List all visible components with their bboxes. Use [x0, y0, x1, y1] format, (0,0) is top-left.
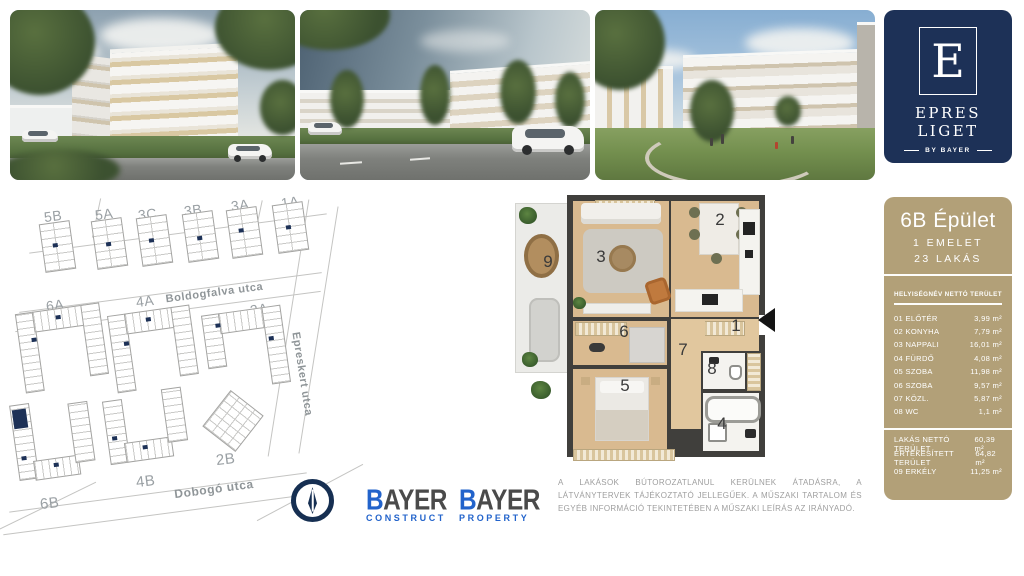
building-5B: [39, 220, 77, 273]
table-row: 01 ELŐTÉR3,99 m²: [894, 312, 1002, 325]
divider: [884, 428, 1012, 430]
main-building: [110, 47, 238, 150]
room-living: [573, 201, 669, 317]
sofa: [581, 203, 661, 224]
table-row: 05 SZOBA11,98 m²: [894, 365, 1002, 378]
room-number-4: 4: [717, 414, 726, 434]
table-row: 07 KÖZL.5,87 m²: [894, 392, 1002, 405]
car: [512, 126, 584, 152]
building-4B: [101, 387, 188, 469]
room-table: 01 ELŐTÉR3,99 m² 02 KONYHA7,79 m² 03 NAP…: [884, 312, 1012, 419]
building-6A: [15, 303, 109, 394]
apartment-block: [857, 22, 875, 145]
room-number-1: 1: [731, 316, 740, 336]
exterior-render-2: [300, 10, 590, 180]
dash-right: [977, 150, 992, 151]
building-3C: [136, 214, 174, 267]
building-label-4A: 4A: [135, 292, 155, 310]
bayer-wordmark: BAYER: [366, 487, 447, 513]
car: [308, 122, 342, 135]
room-bathroom: [703, 393, 759, 451]
building-4A: [107, 305, 199, 394]
kitchen-counter: [739, 209, 760, 295]
courtyard-render-3: [595, 10, 875, 180]
unit-info-panel: 6B Épület 1 EMELET 23 LAKÁS HELYISÉGNÉV …: [884, 197, 1012, 500]
street-epreskert: Epreskert utca: [287, 318, 316, 430]
table-header-underline: [894, 303, 1002, 305]
room-number-6: 6: [619, 322, 628, 342]
brand-name: EPRES LIGET: [884, 104, 1012, 140]
building-label-4B: 4B: [135, 472, 156, 491]
building-3A: [226, 206, 264, 259]
coffee-table: [609, 245, 636, 272]
room-number-8: 8: [707, 359, 716, 379]
panel-building-title: 6B Épület: [884, 209, 1012, 233]
brochure-page: E EPRES LIGET BY BAYER Boldogfalva utca …: [0, 0, 1024, 576]
building-label-2B: 2B: [215, 450, 236, 469]
plant: [531, 381, 551, 399]
street-dobogo: Dobogó utca: [158, 475, 271, 503]
building-2B: [202, 390, 263, 452]
table-row: 03 NAPPALI16,01 m²: [894, 338, 1002, 351]
room-number-5: 5: [620, 376, 629, 396]
disclaimer-text: A LAKÁSOK BÚTOROZATLANUL KERÜLNEK ÁTADÁS…: [558, 477, 862, 515]
bayer-construct-logo: BAYER CONSTRUCT: [366, 487, 452, 523]
sideboard: [583, 303, 651, 314]
building-5A: [91, 217, 129, 270]
exterior-render-1: [10, 10, 295, 180]
wicker-chair: [524, 234, 559, 278]
building-2A: [201, 305, 289, 393]
table-row: 06 SZOBA9,57 m²: [894, 378, 1002, 391]
car: [228, 144, 272, 159]
room-number-9: 9: [543, 252, 552, 272]
table-header: HELYISÉGNÉV NETTÓ TERÜLET: [894, 291, 1002, 298]
plant: [573, 297, 586, 309]
byline-text: BY BAYER: [925, 147, 971, 154]
col-net-area: NETTÓ TERÜLET: [945, 291, 1002, 298]
plant: [519, 207, 537, 224]
room-entry: [701, 319, 759, 351]
car: [22, 130, 58, 142]
table-row: 08 WC1,1 m²: [894, 405, 1002, 418]
bathtub: [705, 396, 761, 423]
panel-units: 23 LAKÁS: [884, 253, 1012, 265]
building-3B: [182, 210, 220, 263]
brand-letter: E: [931, 38, 965, 84]
bayer-wordmark: BAYER: [459, 487, 540, 513]
brand-monogram: E: [919, 27, 977, 95]
dash-left: [904, 150, 919, 151]
compass-icon: [291, 479, 334, 522]
room-number-7: 7: [678, 340, 687, 360]
kitchen-counter: [675, 289, 743, 312]
table-row: 02 KONYHA7,79 m²: [894, 325, 1002, 338]
railing: [573, 449, 675, 461]
total-row: ÉRTÉKESÍTETT TERÜLET64,82 m²: [894, 451, 1002, 464]
sink: [745, 429, 756, 438]
shaft: [747, 353, 761, 391]
building-1A: [272, 201, 310, 254]
panel-floor: 1 EMELET: [884, 237, 1012, 249]
bayer-property-logo: BAYER PROPERTY: [459, 487, 545, 523]
armchair: [644, 276, 672, 306]
bed: [629, 327, 665, 363]
toilet: [729, 365, 742, 380]
brand-byline: BY BAYER: [884, 147, 1012, 154]
totals-table: LAKÁS NETTÓ TERÜLET60,39 m² ÉRTÉKESÍTETT…: [884, 438, 1012, 478]
room-number-2: 2: [715, 210, 724, 230]
plant: [522, 352, 538, 367]
floor-plan: 1 2 3 4 5 6 7 8 9: [515, 195, 777, 463]
balcony: [515, 203, 569, 373]
room-number-3: 3: [596, 247, 605, 267]
brand-logo: E EPRES LIGET BY BAYER: [884, 10, 1012, 163]
highlighted-unit: [12, 409, 29, 430]
entrance-arrow-icon: [758, 308, 775, 332]
compass-needle: [305, 487, 320, 514]
building-label-6B: 6B: [39, 494, 60, 513]
table-row: 04 FÜRDŐ4,08 m²: [894, 352, 1002, 365]
divider: [884, 274, 1012, 276]
building-6B: [8, 389, 97, 487]
col-room-name: HELYISÉGNÉV: [894, 291, 943, 298]
